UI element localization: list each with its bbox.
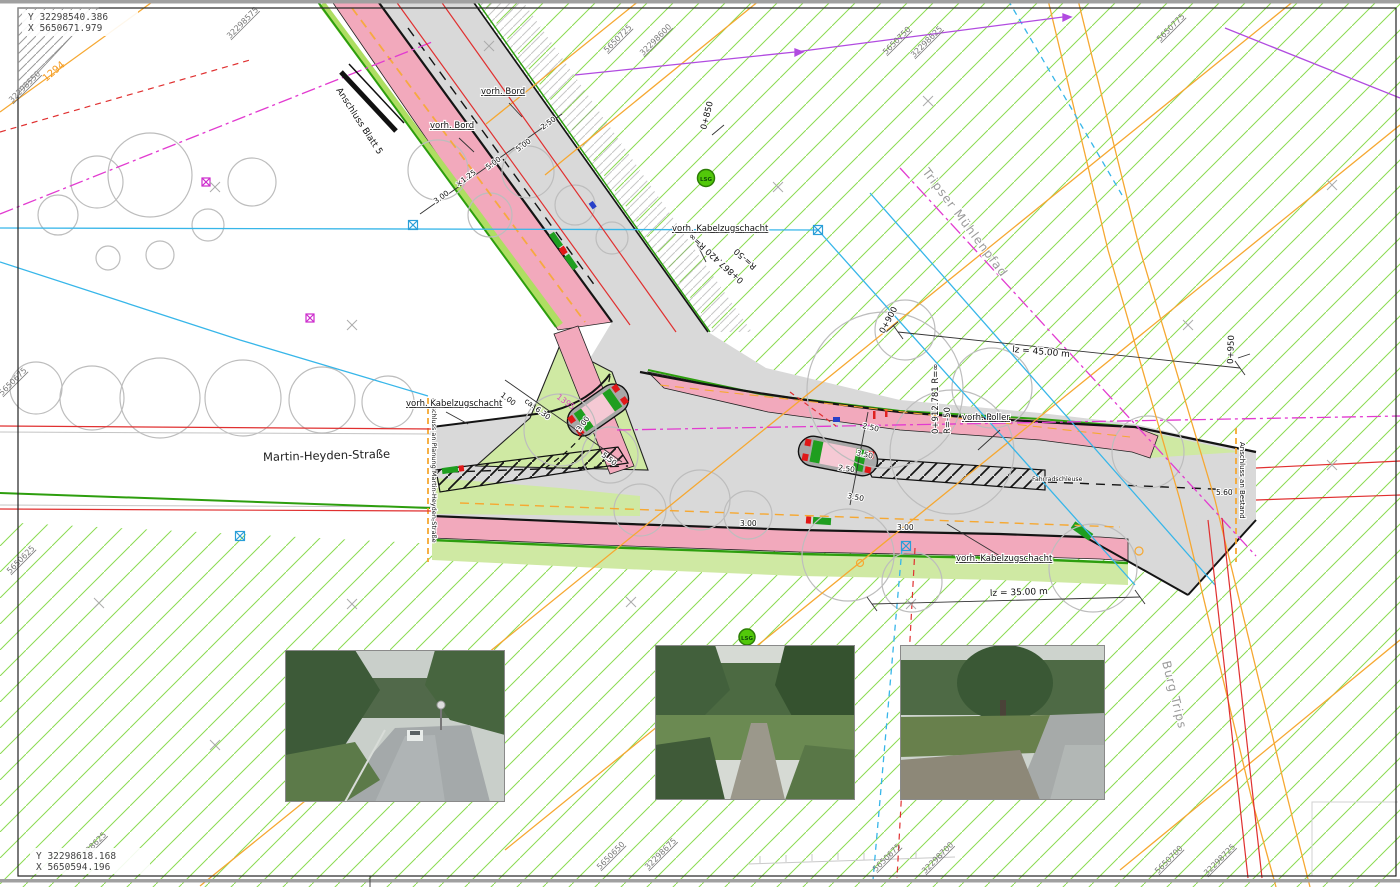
curve-data-912b: R=-50 — [943, 407, 953, 434]
dim-length-35: lz = 35.00 m — [990, 587, 1048, 599]
lsg-marker: LSG — [739, 629, 755, 645]
plan-canvas: LSG LSG 32298575 32298550 — [0, 0, 1400, 887]
photo-1 — [285, 650, 505, 802]
annotation-kabelzugschacht: vorh. Kabelzugschacht — [956, 554, 1053, 564]
dim-560: 5.60 — [1216, 488, 1233, 497]
annotation-kabelzugschacht: vorh. Kabelzugschacht — [406, 399, 503, 409]
lsg-label: LSG — [741, 636, 753, 642]
lsg-marker: LSG — [698, 170, 715, 187]
photo-2 — [655, 645, 855, 800]
annotation-fahrradschleuse: Fahrradschleuse — [1032, 476, 1083, 483]
site-plan-sheet: LSG LSG 32298575 32298550 — [0, 0, 1400, 887]
sheet-corner-coordinate-y: Y 32298540.386 — [28, 12, 108, 23]
annotation-bord: vorh. Bord — [430, 121, 474, 131]
connection-bestand: Anschluss an Bestand — [1238, 442, 1246, 519]
station-0950: 0+950 — [1226, 335, 1237, 364]
sheet-corner-coordinate-y: Y 32298618.168 — [36, 851, 116, 862]
annotation-kabelzugschacht: vorh. Kabelzugschacht — [672, 224, 769, 234]
curve-data-912: 0+912.781 R=∞ — [931, 364, 941, 435]
sheet-corner-coordinate-x: X 5650594.196 — [36, 862, 111, 873]
shaft-box — [833, 417, 840, 422]
dim-300: 3.00 — [897, 523, 914, 532]
connection-planung: Anschluss an Planung Martin-Heyden-Straß… — [430, 398, 438, 543]
dim-300: 3.00 — [740, 519, 757, 528]
annotation-poller: vorh. Poller — [962, 413, 1010, 423]
photo-3 — [900, 645, 1105, 800]
sheet-corner-coordinate-x: X 5650671.979 — [28, 23, 103, 34]
annotation-bord: vorh. Bord — [481, 87, 525, 97]
lsg-label: LSG — [700, 177, 712, 183]
